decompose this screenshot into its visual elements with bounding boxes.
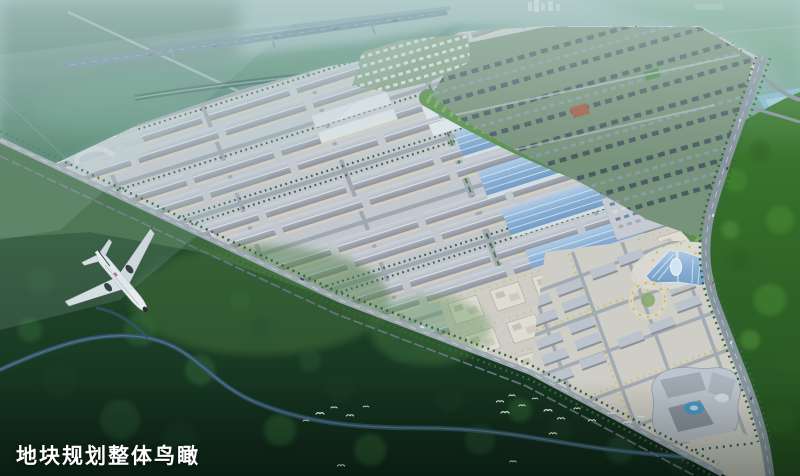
screenshot-root: 地块规划整体鸟瞰: [0, 0, 800, 476]
atmosphere-haze: [0, 0, 800, 476]
aerial-rendering-image: [0, 0, 800, 476]
caption-title: 地块规划整体鸟瞰: [16, 440, 200, 470]
